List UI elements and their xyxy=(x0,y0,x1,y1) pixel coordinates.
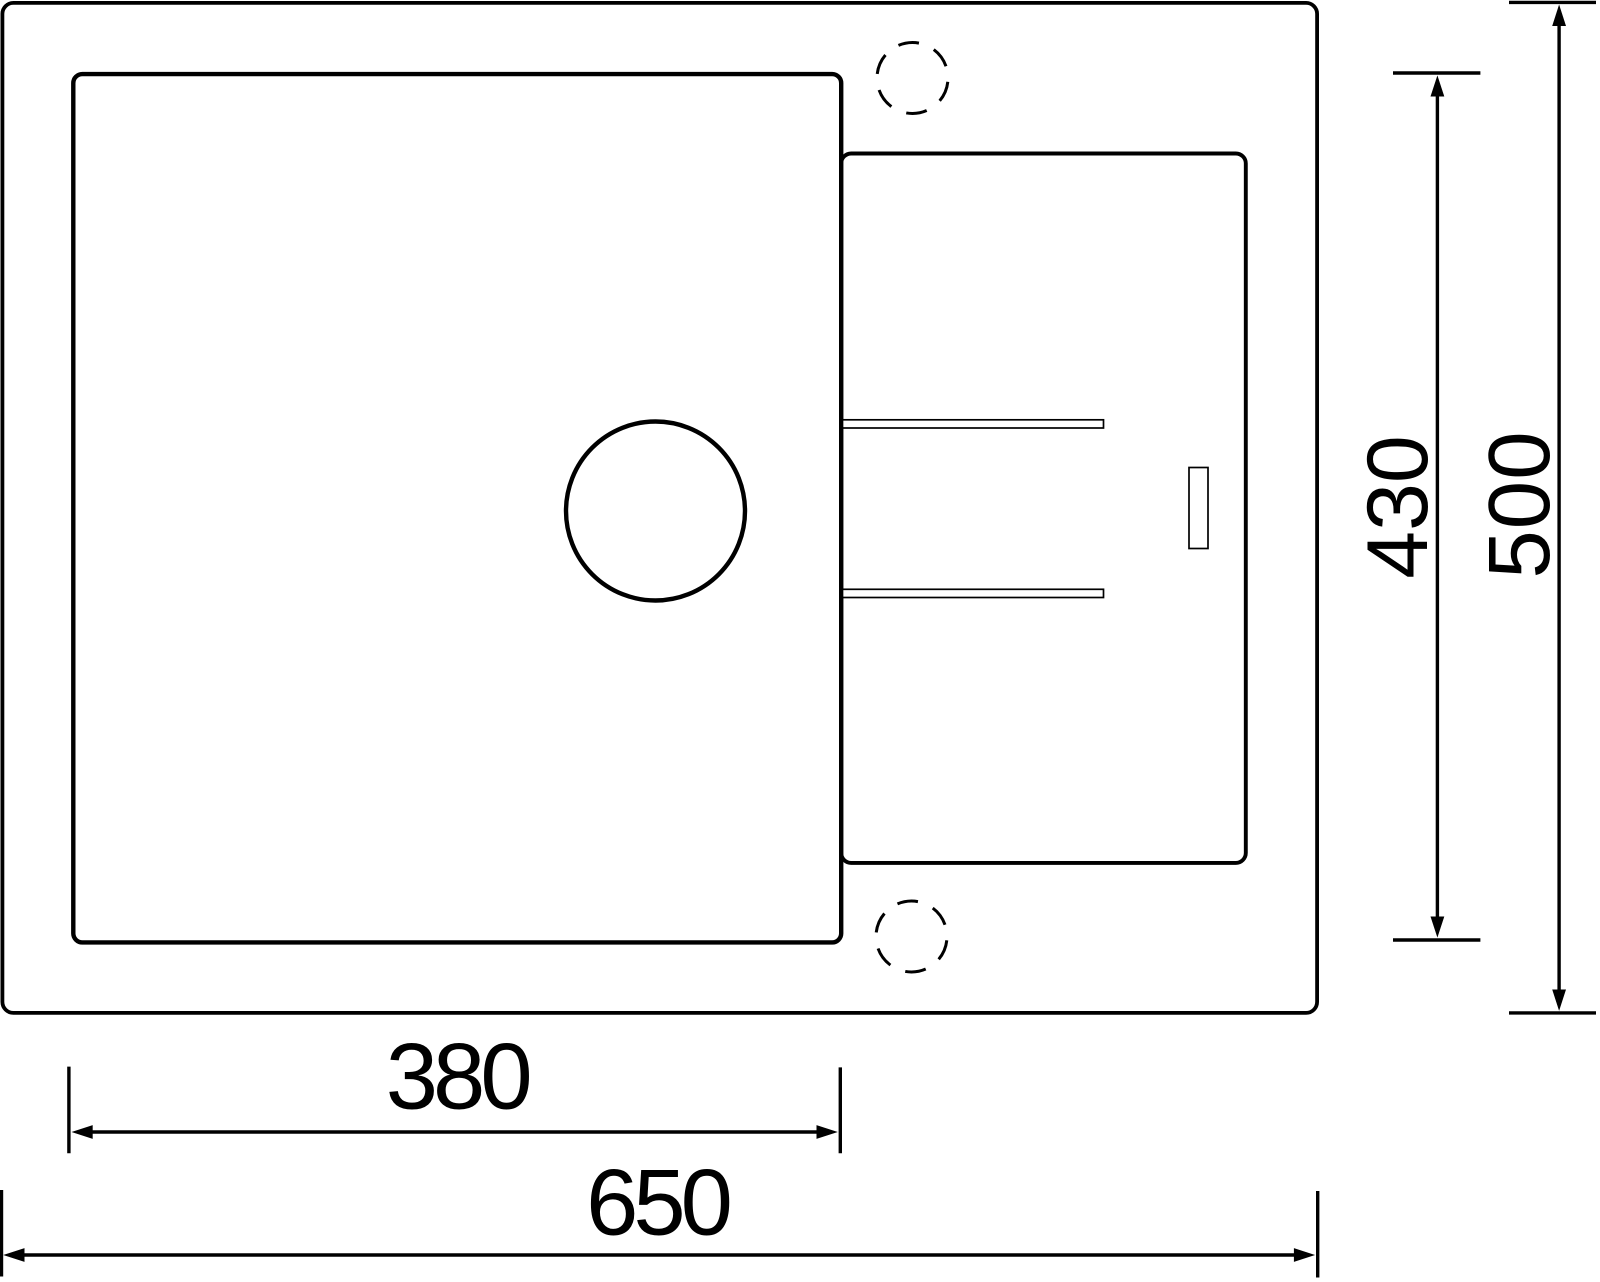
svg-text:380: 380 xyxy=(386,1024,530,1129)
svg-text:430: 430 xyxy=(1350,435,1446,579)
svg-text:500: 500 xyxy=(1471,430,1568,578)
svg-text:650: 650 xyxy=(586,1149,730,1254)
